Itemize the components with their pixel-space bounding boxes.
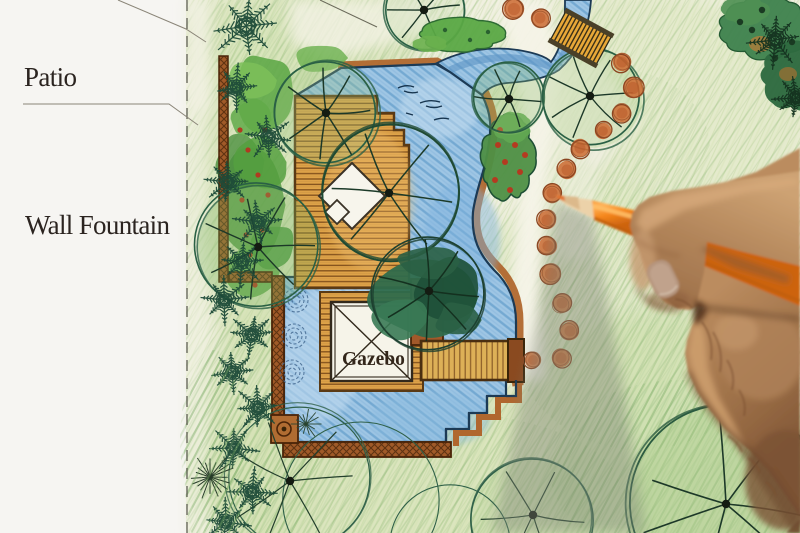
svg-text:Gazebo: Gazebo [342,349,405,370]
svg-text:Wall Fountain: Wall Fountain [25,210,171,240]
svg-text:Patio: Patio [24,62,77,92]
